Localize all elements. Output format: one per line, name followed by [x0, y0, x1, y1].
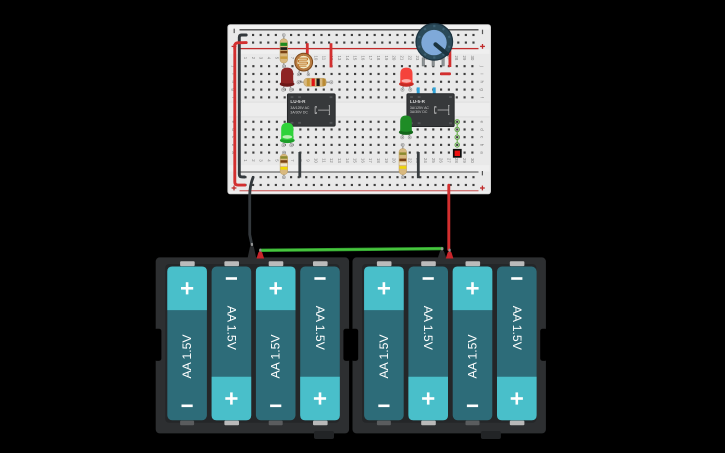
svg-text:22: 22: [407, 56, 412, 61]
svg-text:22: 22: [407, 158, 412, 163]
svg-text:19: 19: [384, 56, 389, 61]
svg-text:10: 10: [314, 56, 319, 61]
svg-text:19: 19: [384, 158, 389, 163]
svg-text:AA 1.5V: AA 1.5V: [510, 306, 524, 351]
svg-text:LU-5-R: LU-5-R: [410, 99, 426, 104]
svg-text:29: 29: [462, 56, 467, 61]
svg-text:i: i: [480, 74, 485, 75]
svg-text:25: 25: [431, 158, 436, 163]
svg-text:18: 18: [376, 158, 381, 163]
svg-text:27: 27: [446, 158, 451, 163]
svg-text:3A/30V DC: 3A/30V DC: [410, 110, 428, 114]
svg-text:16: 16: [360, 56, 365, 61]
svg-text:17: 17: [368, 56, 373, 61]
svg-text:17: 17: [368, 158, 373, 163]
svg-text:AA 1.5V: AA 1.5V: [466, 334, 480, 379]
svg-text:AA 1.5V: AA 1.5V: [313, 306, 327, 351]
svg-text:15: 15: [353, 56, 358, 61]
svg-text:3A/30V DC: 3A/30V DC: [290, 110, 308, 114]
svg-text:20: 20: [392, 158, 397, 163]
svg-text:14: 14: [345, 56, 350, 61]
svg-text:AA 1.5V: AA 1.5V: [377, 334, 391, 379]
svg-text:AA 1.5V: AA 1.5V: [224, 306, 238, 351]
svg-text:26: 26: [439, 158, 444, 163]
svg-text:11: 11: [321, 56, 326, 61]
svg-text:30: 30: [470, 56, 475, 61]
svg-text:AA 1.5V: AA 1.5V: [269, 334, 283, 379]
svg-text:13: 13: [337, 158, 342, 163]
svg-text:16: 16: [360, 158, 365, 163]
svg-text:28: 28: [454, 56, 459, 61]
svg-text:21: 21: [400, 56, 405, 61]
svg-text:15: 15: [353, 158, 358, 163]
svg-text:LU-5-R: LU-5-R: [290, 99, 306, 104]
svg-text:23: 23: [415, 56, 420, 61]
svg-text:11: 11: [321, 158, 326, 163]
svg-text:14: 14: [345, 158, 350, 163]
svg-text:AA 1.5V: AA 1.5V: [421, 306, 435, 351]
svg-text:29: 29: [462, 158, 467, 163]
svg-text:12: 12: [329, 158, 334, 163]
svg-text:24: 24: [423, 158, 428, 163]
svg-text:10: 10: [314, 158, 319, 163]
svg-text:18: 18: [376, 56, 381, 61]
svg-text:13: 13: [337, 56, 342, 61]
svg-text:30: 30: [470, 158, 475, 163]
svg-text:20: 20: [392, 56, 397, 61]
svg-text:28: 28: [454, 158, 459, 163]
svg-text:j: j: [480, 65, 485, 67]
svg-text:AA 1.5V: AA 1.5V: [180, 334, 194, 379]
